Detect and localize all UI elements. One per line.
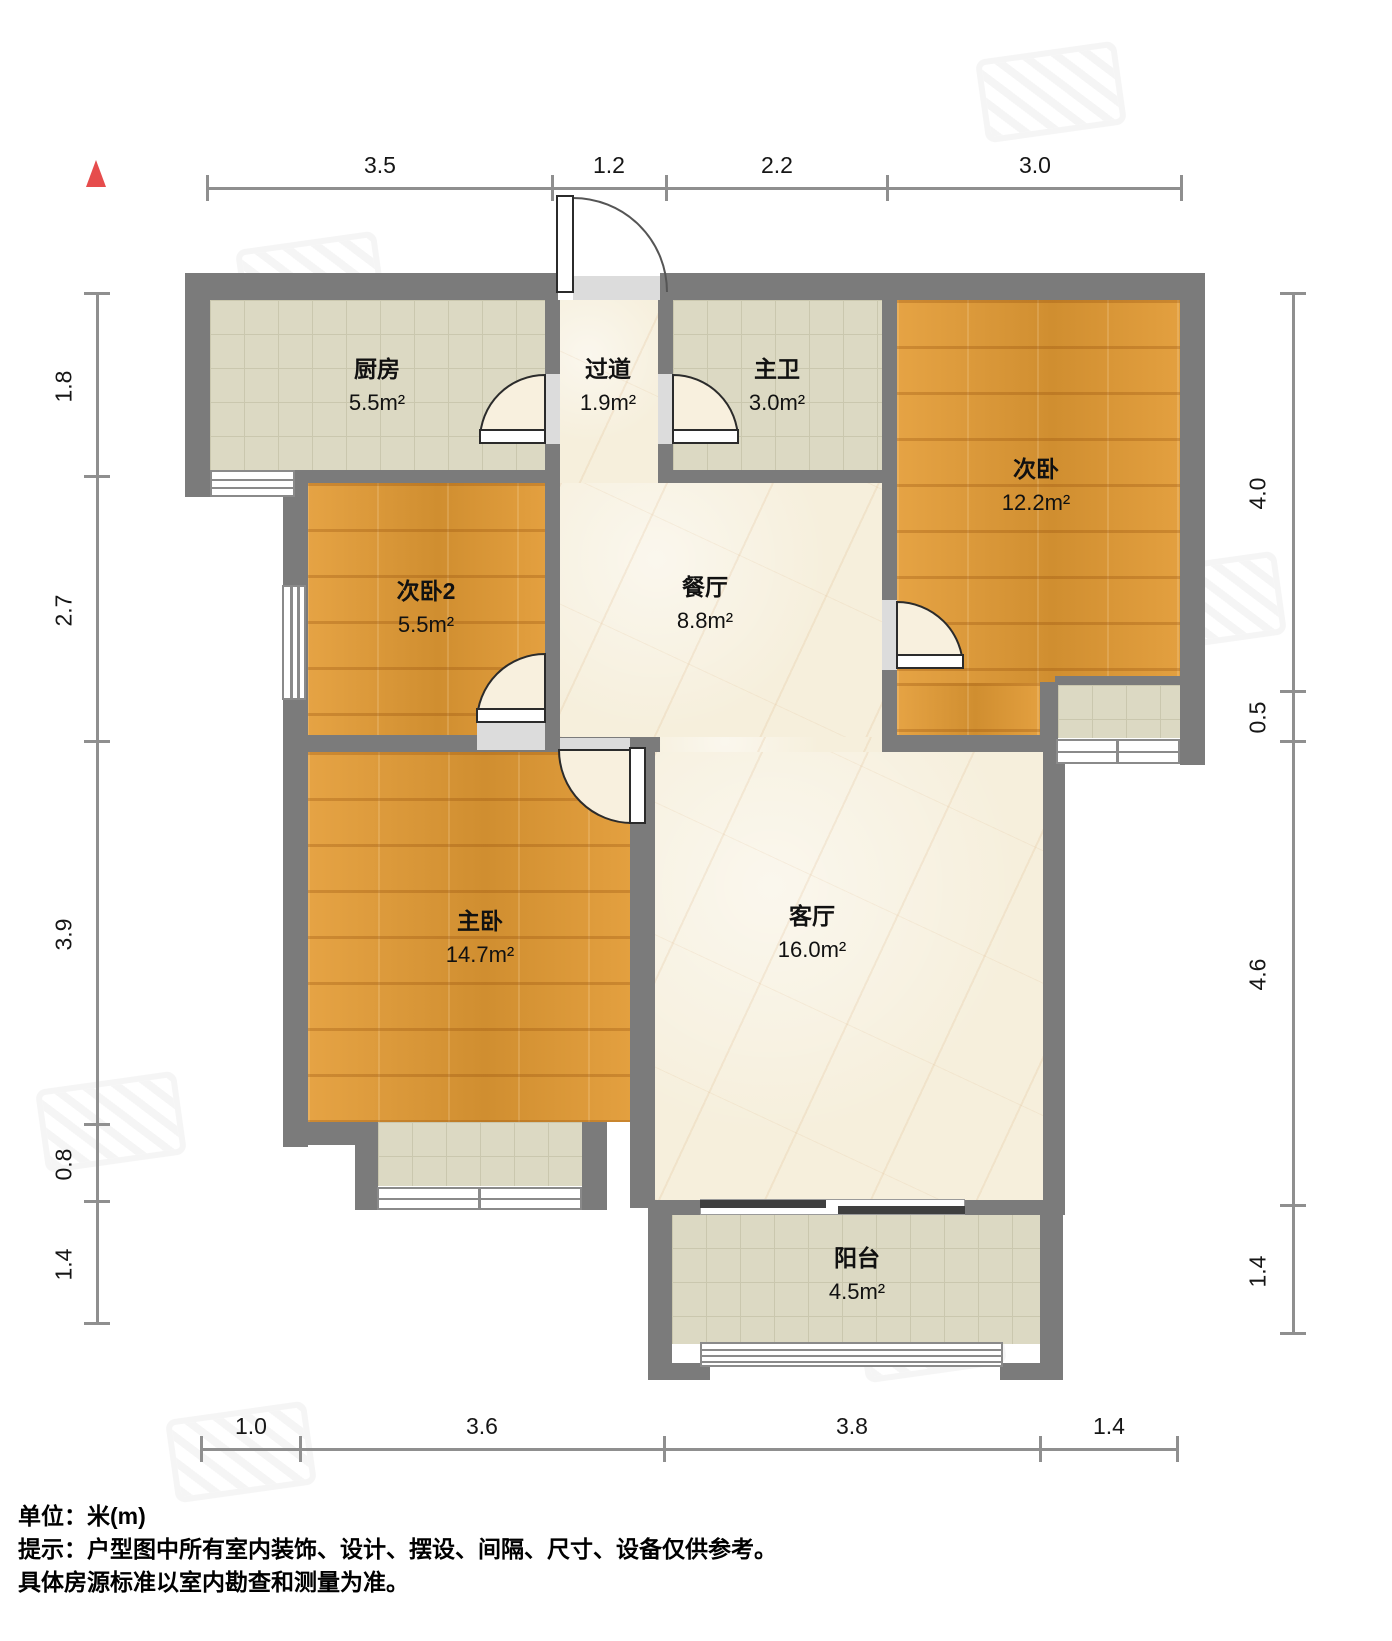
dim-top-2: 1.2 (577, 152, 641, 179)
dim-top-3: 2.2 (745, 152, 809, 179)
dim-line-right (1292, 293, 1295, 1334)
dim-line-bottom (201, 1448, 1178, 1451)
dim-line-top (207, 187, 1182, 190)
dim-bottom-4: 1.4 (1077, 1413, 1141, 1440)
dim-bottom-3: 3.8 (820, 1413, 884, 1440)
dim-left-4: 0.8 (51, 1133, 78, 1197)
room-label-bedroom3: 次卧25.5m² (346, 574, 506, 641)
bath-door-leaf (673, 430, 738, 443)
dim-left-3: 3.9 (51, 903, 78, 967)
room-label-living: 客厅16.0m² (732, 899, 892, 966)
room-label-balcony: 阳台4.5m² (777, 1241, 937, 1308)
dim-line-left (96, 293, 99, 1324)
dim-right-4: 1.4 (1245, 1240, 1272, 1304)
footer-tip-1: 提示：户型图中所有室内装饰、设计、摆设、间隔、尺寸、设备仅供参考。 (18, 1530, 777, 1564)
dim-left-5: 1.4 (51, 1233, 78, 1297)
entry-door-leaf (557, 196, 573, 292)
master-door-leaf (630, 748, 645, 823)
bedroom2-door-leaf (897, 655, 963, 668)
entry-door-arc (573, 198, 667, 292)
kitchen-door-leaf (480, 430, 545, 443)
door-swing-layer (0, 0, 1392, 1641)
dim-bottom-1: 1.0 (219, 1413, 283, 1440)
footer-tip-2: 具体房源标准以室内勘查和测量为准。 (18, 1563, 409, 1597)
dim-top-1: 3.5 (348, 152, 412, 179)
dim-right-3: 4.6 (1245, 943, 1272, 1007)
dim-right-2: 0.5 (1245, 686, 1272, 750)
bedroom3-door-leaf (477, 709, 545, 722)
room-label-dining: 餐厅8.8m² (625, 570, 785, 637)
room-label-kitchen: 厨房5.5m² (297, 352, 457, 419)
dim-bottom-2: 3.6 (450, 1413, 514, 1440)
floorplan-canvas: 厨房5.5m² 过道1.9m² 主卫3.0m² 次卧12.2m² 次卧25.5m… (0, 0, 1392, 1641)
master-door-arc (559, 750, 632, 823)
room-label-master-bath: 主卫3.0m² (697, 352, 857, 419)
dim-right-1: 4.0 (1245, 462, 1272, 526)
room-label-bedroom2: 次卧12.2m² (956, 452, 1116, 519)
footer-unit: 单位：米(m) (18, 1497, 146, 1531)
dim-top-4: 3.0 (1003, 152, 1067, 179)
dim-left-2: 2.7 (51, 579, 78, 643)
room-label-master-bedroom: 主卧14.7m² (400, 904, 560, 971)
dim-left-1: 1.8 (51, 355, 78, 419)
room-label-hallway: 过道1.9m² (528, 352, 688, 419)
